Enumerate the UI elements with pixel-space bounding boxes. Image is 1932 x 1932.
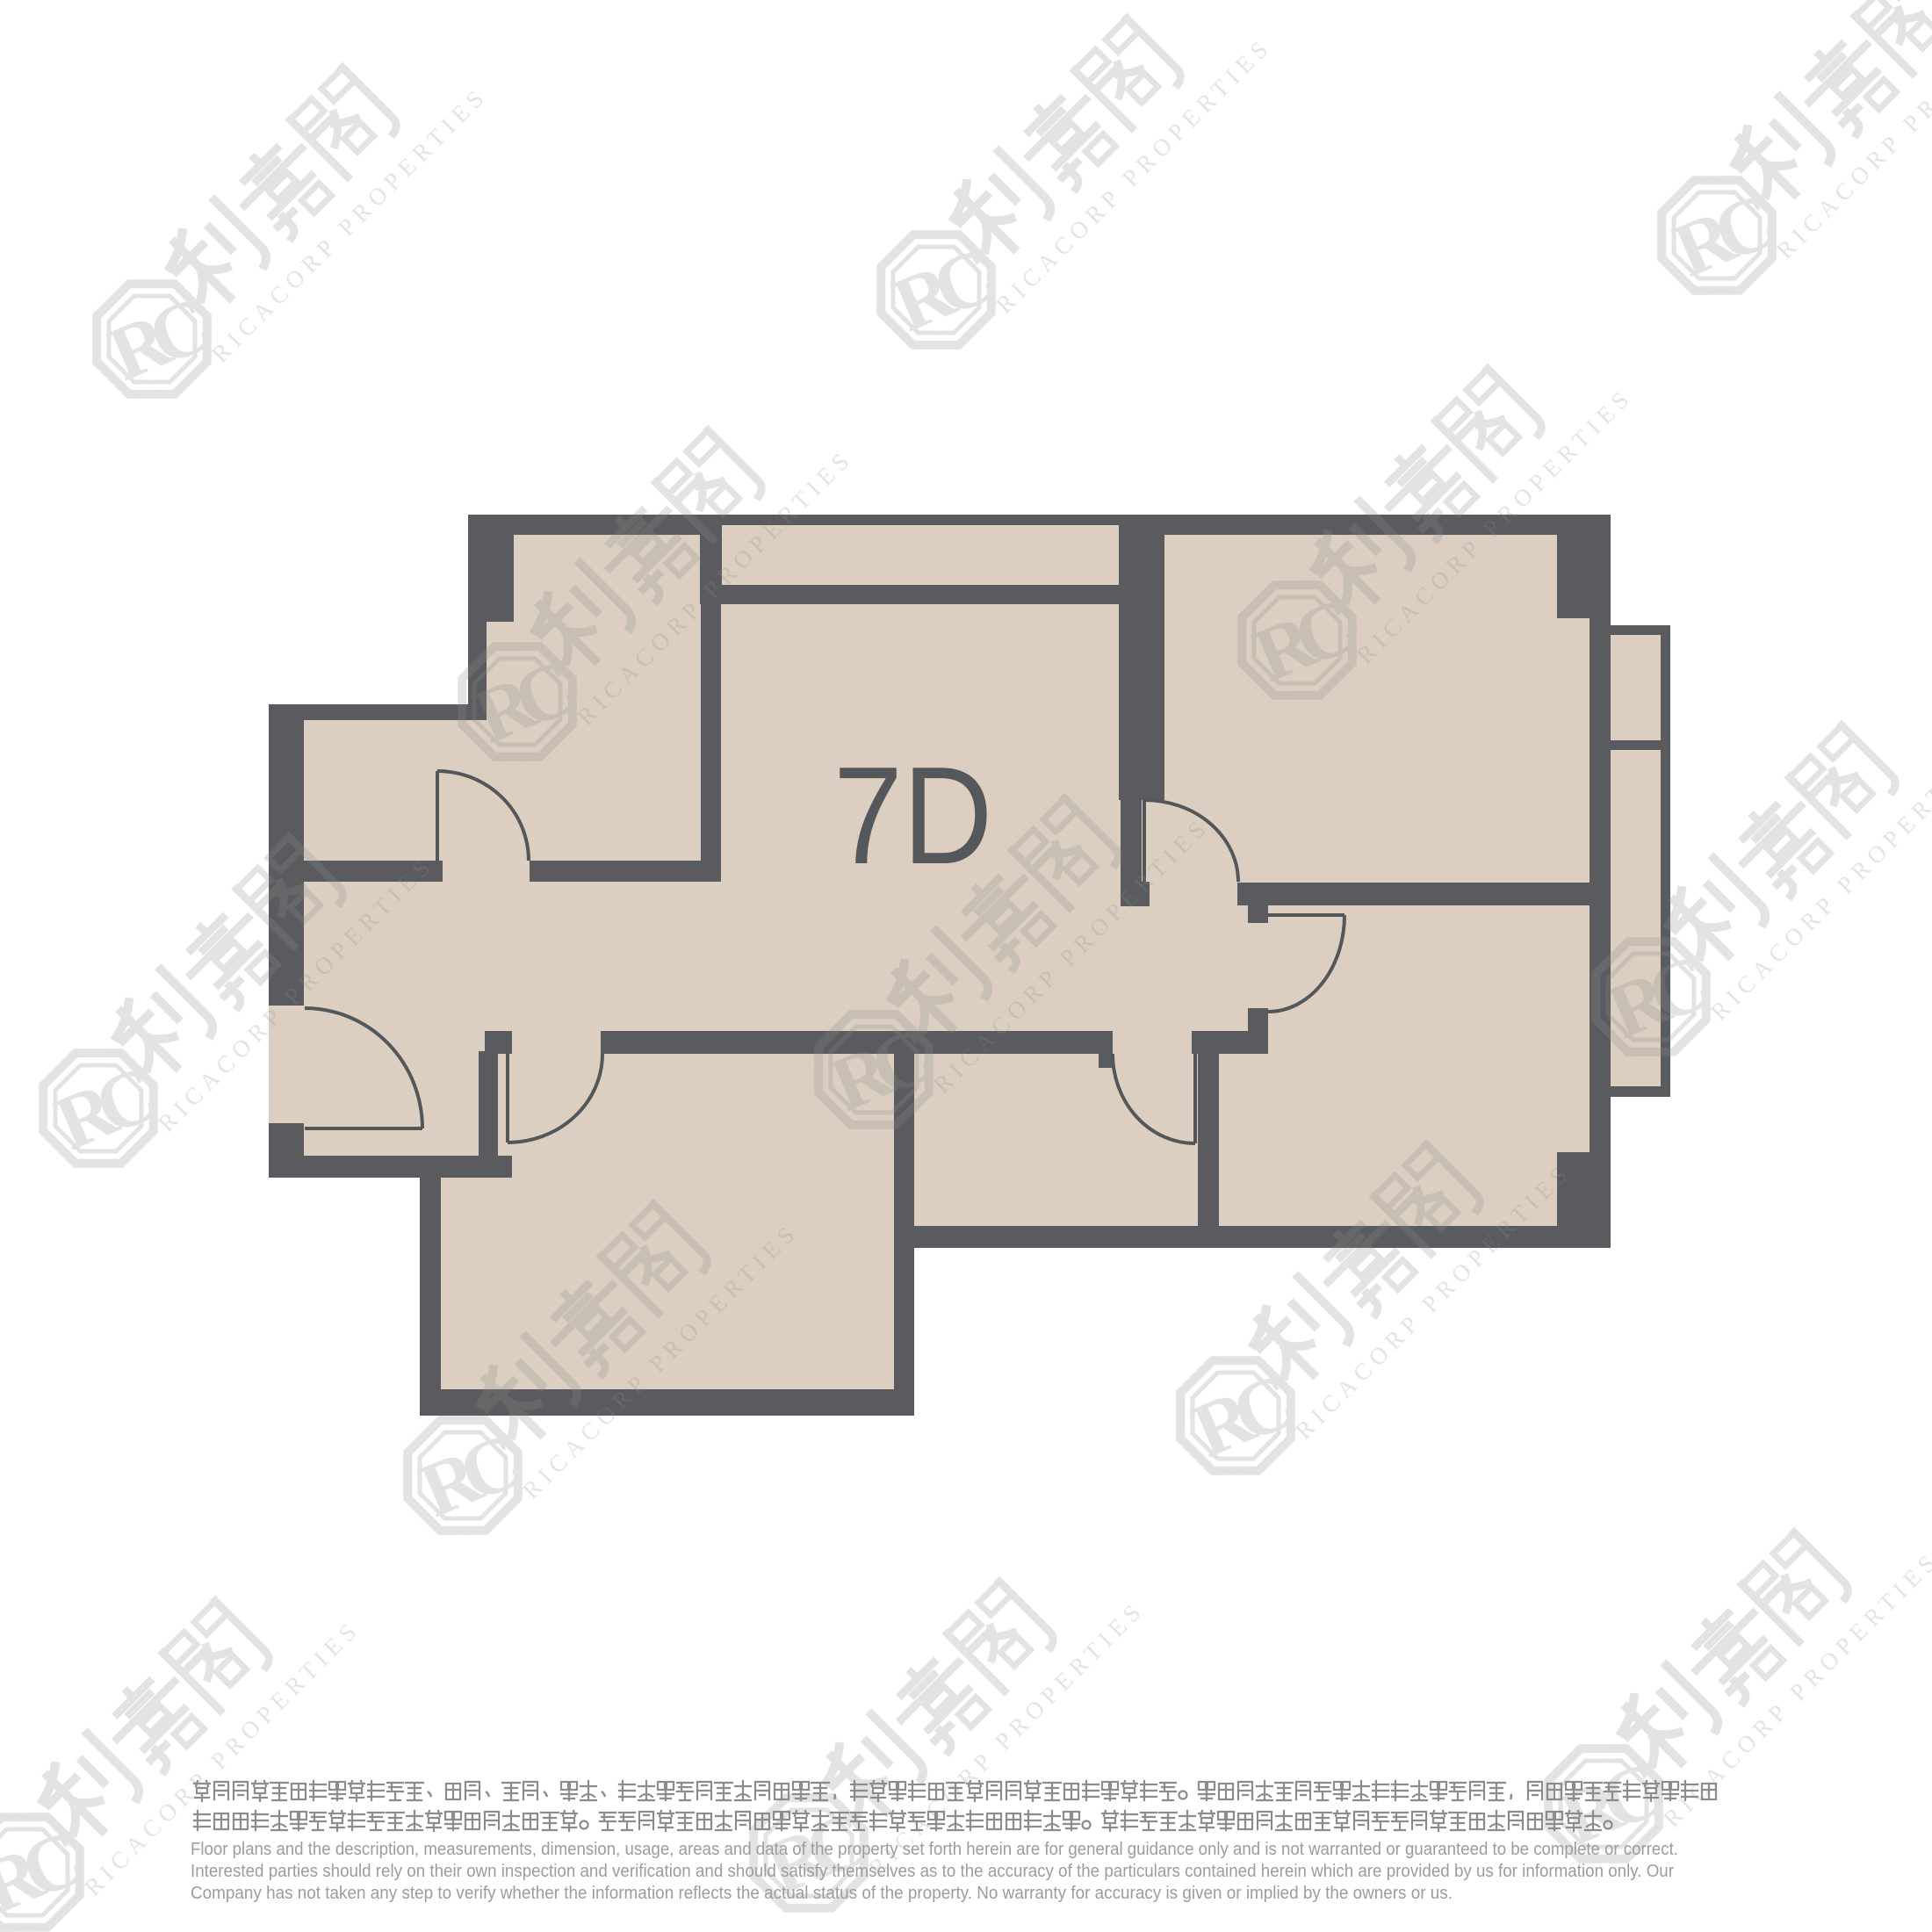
svg-text:Company has not taken any step: Company has not taken any step to verify… (191, 1883, 1453, 1903)
svg-text:Interested parties should rely: Interested parties should rely on their … (191, 1861, 1674, 1881)
svg-text:7D: 7D (833, 738, 992, 893)
svg-text:Floor plans and the descriptio: Floor plans and the description, measure… (191, 1839, 1678, 1859)
